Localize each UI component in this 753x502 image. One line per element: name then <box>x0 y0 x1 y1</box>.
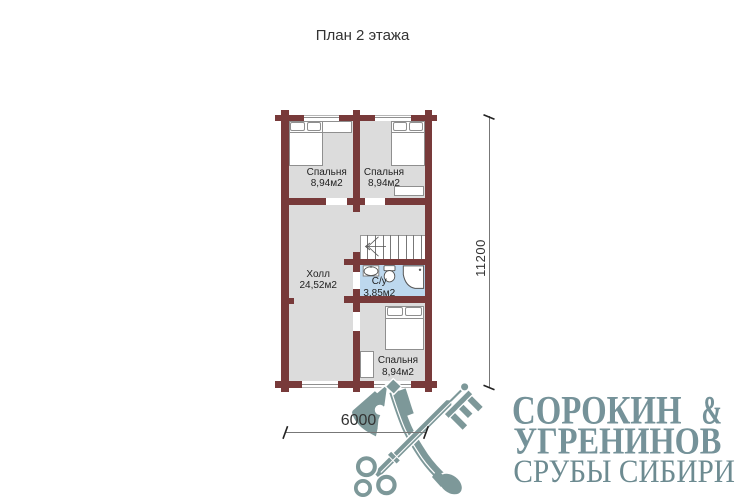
svg-text:СРУБЫ СИБИРИ: СРУБЫ СИБИРИ <box>513 454 735 490</box>
